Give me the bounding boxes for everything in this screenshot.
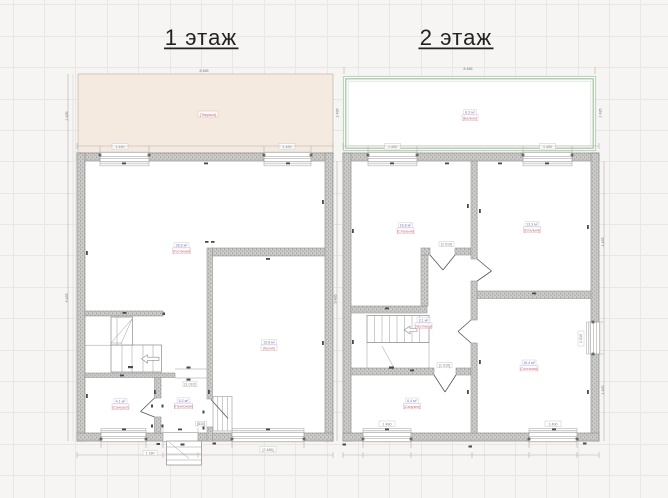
svg-text:[810]: [810] bbox=[197, 422, 205, 426]
svg-text:2 485: 2 485 bbox=[65, 112, 69, 121]
svg-text:[Гостиная]: [Гостиная] bbox=[173, 249, 190, 253]
svg-text:9 485: 9 485 bbox=[334, 295, 338, 304]
svg-text:4 485: 4 485 bbox=[601, 386, 605, 395]
svg-text:1 490: 1 490 bbox=[383, 423, 392, 427]
svg-text:[1 010]: [1 010] bbox=[185, 383, 196, 387]
svg-text:15.8 м²: 15.8 м² bbox=[263, 341, 275, 345]
svg-text:9 485: 9 485 bbox=[65, 294, 69, 303]
svg-text:28.6 м²: 28.6 м² bbox=[176, 244, 188, 248]
svg-text:1 490: 1 490 bbox=[116, 145, 125, 149]
svg-text:1 490: 1 490 bbox=[543, 145, 552, 149]
svg-text:[Терраса]: [Терраса] bbox=[200, 113, 216, 117]
svg-text:13.3 м²: 13.3 м² bbox=[526, 223, 538, 227]
svg-text:[1 010]: [1 010] bbox=[439, 364, 450, 368]
svg-text:[Гостиная]: [Гостиная] bbox=[520, 367, 537, 371]
svg-text:[Кухня]: [Кухня] bbox=[263, 346, 275, 350]
svg-text:[Санузел]: [Санузел] bbox=[404, 405, 420, 409]
svg-text:6.3 м²: 6.3 м² bbox=[465, 111, 475, 115]
svg-text:[Прихожая]: [Прихожая] bbox=[174, 405, 193, 409]
svg-text:[Спальня]: [Спальня] bbox=[524, 228, 540, 232]
svg-text:2 485: 2 485 bbox=[336, 109, 340, 118]
svg-text:[Балкон]: [Балкон] bbox=[463, 116, 477, 120]
svg-text:[1 010]: [1 010] bbox=[441, 243, 452, 247]
svg-text:16.8 м²: 16.8 м² bbox=[400, 224, 412, 228]
svg-text:5.2 м²: 5.2 м² bbox=[179, 399, 189, 403]
svg-text:6.4 м²: 6.4 м² bbox=[407, 399, 417, 403]
svg-text:3.1 м²: 3.1 м² bbox=[419, 319, 429, 323]
svg-text:1 490: 1 490 bbox=[388, 145, 397, 149]
svg-text:1 490: 1 490 bbox=[549, 423, 558, 427]
svg-text:[Спальня]: [Спальня] bbox=[397, 229, 413, 233]
svg-text:8 485: 8 485 bbox=[200, 69, 209, 73]
svg-text:[Санузел]: [Санузел] bbox=[113, 405, 129, 409]
svg-text:[лестница]: [лестница] bbox=[415, 324, 433, 328]
svg-text:1 180: 1 180 bbox=[146, 452, 155, 456]
svg-text:1 010: 1 010 bbox=[579, 334, 583, 343]
svg-text:4 485: 4 485 bbox=[601, 238, 605, 247]
svg-text:4.1 м²: 4.1 м² bbox=[116, 400, 126, 404]
svg-text:15.4 м²: 15.4 м² bbox=[523, 361, 535, 365]
svg-text:1 490: 1 490 bbox=[283, 145, 292, 149]
svg-text:2 485: 2 485 bbox=[599, 109, 603, 118]
svg-text:2 этаж: 2 этаж bbox=[420, 25, 492, 50]
svg-text:8 485: 8 485 bbox=[464, 67, 473, 71]
svg-text:1 этаж: 1 этаж bbox=[165, 25, 237, 50]
svg-text:[2 485]: [2 485] bbox=[263, 448, 274, 452]
